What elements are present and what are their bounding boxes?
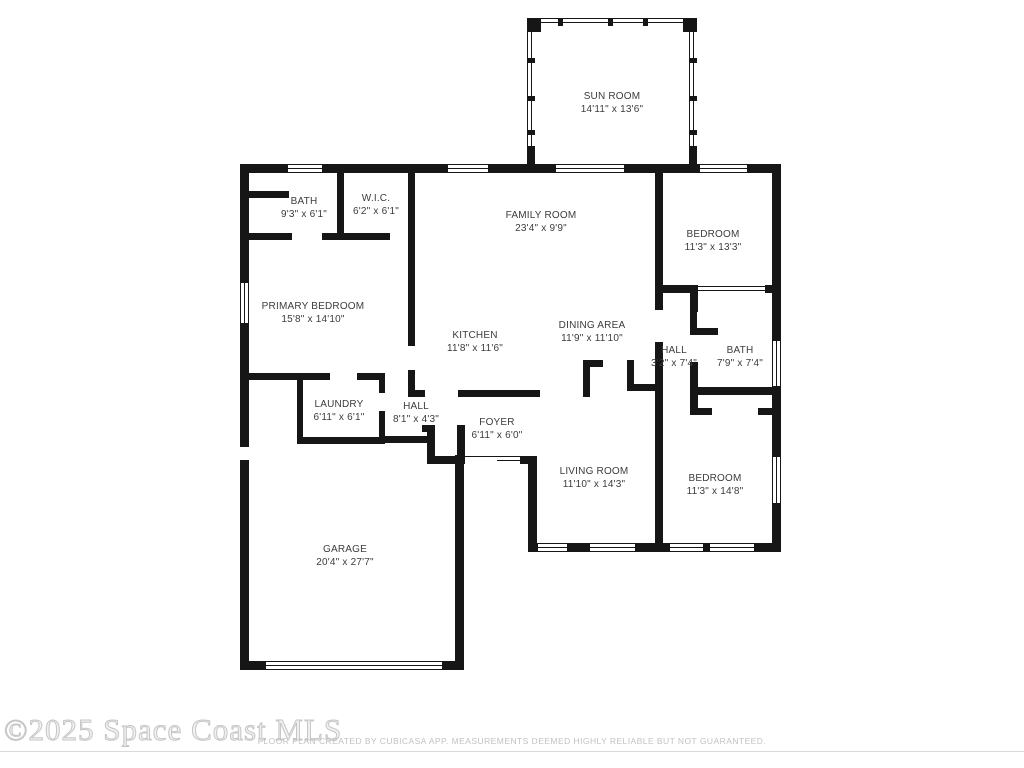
wall-sunroom-mullion — [689, 58, 697, 63]
wall-shower — [690, 328, 718, 335]
wall-sunroom-mullion — [558, 18, 563, 26]
wall-sunroom-corner-left — [527, 18, 541, 32]
wall-sunroom-mullion — [689, 96, 697, 101]
wall-sunroom-mullion — [689, 130, 697, 135]
room-label-bath-east: BATH 7'9" x 7'4" — [717, 344, 763, 370]
room-label-dining-area: DINING AREA 11'9" x 11'10" — [559, 319, 626, 345]
room-name: KITCHEN — [447, 329, 503, 342]
wall-hall-bath-divider — [690, 285, 698, 312]
wall-laundry-left — [297, 373, 303, 443]
room-dims: 11'9" x 11'10" — [559, 332, 626, 345]
disclaimer-text: FLOOR PLAN CREATED BY CUBICASA APP. MEAS… — [258, 736, 766, 746]
wall-entry-closet-right — [457, 425, 465, 456]
room-label-laundry: LAUNDRY 6'11" x 6'1" — [314, 398, 365, 424]
room-name: BATH — [281, 195, 327, 208]
room-label-hall-center: HALL 8'1" x 4'3" — [393, 400, 439, 426]
wall-bath-wic-divider — [337, 164, 344, 240]
room-name: LAUNDRY — [314, 398, 365, 411]
sunroom-window-wall-right — [689, 18, 697, 164]
wall-sunroom-corner-right — [683, 18, 697, 32]
window-bedroom-upper — [700, 164, 747, 173]
window-living-room — [538, 543, 567, 552]
room-dims: 7'9" x 7'4" — [717, 357, 763, 370]
room-label-bedroom-lower: BEDROOM 11'3" x 14'8" — [687, 472, 744, 498]
window-foyer — [497, 456, 520, 464]
sunroom-sliding-door — [556, 164, 624, 173]
room-dims: 8'1" x 4'3" — [393, 413, 439, 426]
wall-dining-jog — [583, 360, 590, 397]
room-dims: 3'2" x 7'4" — [651, 357, 697, 370]
room-name: FAMILY ROOM — [506, 209, 577, 222]
wall-bath-bottom-east — [693, 387, 781, 395]
wall-kitchen-bottom — [408, 390, 425, 397]
window-bath-east — [772, 341, 781, 386]
wall-sunroom-anchor-left — [527, 146, 535, 164]
wall-family-west — [408, 164, 415, 240]
wall-laundry-top — [357, 373, 379, 380]
window-bedroom-lower — [710, 543, 754, 552]
room-dims: 11'3" x 13'3" — [685, 241, 742, 254]
wall-bedroom-closet-back — [765, 285, 781, 293]
room-name: DINING AREA — [559, 319, 626, 332]
room-dims: 6'11" x 6'0" — [472, 429, 523, 442]
room-name: BEDROOM — [687, 472, 744, 485]
wall-east-divider-lower — [655, 342, 663, 543]
bottom-divider-line — [0, 751, 1024, 752]
room-label-primary-bedroom: PRIMARY BEDROOM 15'8" x 14'10" — [262, 300, 365, 326]
room-name: HALL — [393, 400, 439, 413]
wall-entry-closet-cap — [422, 425, 435, 432]
bedroom-closet-doors — [695, 286, 765, 292]
room-name: GARAGE — [316, 543, 373, 556]
wall-laundry-right — [379, 373, 385, 393]
front-door-opening — [465, 456, 497, 464]
room-label-garage: GARAGE 20'4" x 27'7" — [316, 543, 373, 569]
room-dims: 6'11" x 6'1" — [314, 411, 365, 424]
wall-sunroom-mullion — [527, 130, 535, 135]
window-bath-top — [288, 164, 322, 173]
room-label-wic: W.I.C. 6'2" x 6'1" — [353, 192, 399, 218]
room-dims: 9'3" x 6'1" — [281, 208, 327, 221]
room-name: BEDROOM — [685, 228, 742, 241]
room-name: BATH — [717, 344, 763, 357]
wall-bedroom2-closet — [758, 408, 780, 415]
wall-sunroom-mullion — [527, 58, 535, 63]
window-bedroom-lower — [670, 543, 703, 552]
room-name: PRIMARY BEDROOM — [262, 300, 365, 313]
room-label-bedroom-upper: BEDROOM 11'3" x 13'3" — [685, 228, 742, 254]
room-dims: 11'3" x 14'8" — [687, 485, 744, 498]
wall-bath-bottom — [240, 233, 292, 240]
wall-foyer-top — [458, 390, 540, 397]
wall-sunroom-mullion — [608, 18, 613, 26]
wall-east-divider-upper — [655, 164, 663, 310]
wall-sunroom-mullion — [643, 18, 648, 26]
wall-kitchen-west — [408, 240, 415, 346]
room-dims: 14'11" x 13'6" — [581, 103, 643, 116]
room-dims: 11'8" x 11'6" — [447, 342, 503, 355]
garage-door — [266, 661, 442, 670]
wall-sunroom-mullion — [527, 96, 535, 101]
wall-dining-jog — [590, 360, 603, 367]
sunroom-window-wall-left — [527, 18, 535, 164]
room-name: HALL — [651, 344, 697, 357]
wall-bedroom2-closet — [698, 408, 712, 415]
wall-living-west — [528, 457, 537, 543]
wall-garage-right — [455, 455, 464, 670]
room-dims: 11'10" x 14'3" — [560, 478, 629, 491]
room-dims: 20'4" x 27'7" — [316, 556, 373, 569]
room-label-living-room: LIVING ROOM 11'10" x 14'3" — [560, 465, 629, 491]
room-name: LIVING ROOM — [560, 465, 629, 478]
wall-wic-bottom — [344, 233, 390, 240]
room-label-family-room: FAMILY ROOM 23'4" x 9'9" — [506, 209, 577, 235]
room-dims: 15'8" x 14'10" — [262, 313, 365, 326]
garage-side-opening — [240, 447, 249, 460]
floor-plan-page: SUN ROOM 14'11" x 13'6" BATH 9'3" x 6'1"… — [0, 0, 1024, 768]
window-primary-bedroom — [240, 283, 249, 323]
room-label-foyer: FOYER 6'11" x 6'0" — [472, 416, 523, 442]
wall-sunroom-anchor-right — [689, 146, 697, 164]
room-label-bath-upper: BATH 9'3" x 6'1" — [281, 195, 327, 221]
room-label-kitchen: KITCHEN 11'8" x 11'6" — [447, 329, 503, 355]
window-family-room — [448, 164, 488, 173]
wall-primary-bottom — [240, 373, 298, 380]
window-bedroom-lower-side — [772, 457, 781, 503]
window-living-room — [590, 543, 635, 552]
room-name: SUN ROOM — [581, 90, 643, 103]
wall-hall-bottom — [379, 436, 429, 443]
wall-bedroom2-closet — [690, 395, 698, 415]
room-dims: 6'2" x 6'1" — [353, 205, 399, 218]
wall-laundry-bottom — [297, 437, 385, 444]
room-label-sun-room: SUN ROOM 14'11" x 13'6" — [581, 90, 643, 116]
room-name: W.I.C. — [353, 192, 399, 205]
room-dims: 23'4" x 9'9" — [506, 222, 577, 235]
room-name: FOYER — [472, 416, 523, 429]
room-label-hall-east: HALL 3'2" x 7'4" — [651, 344, 697, 370]
